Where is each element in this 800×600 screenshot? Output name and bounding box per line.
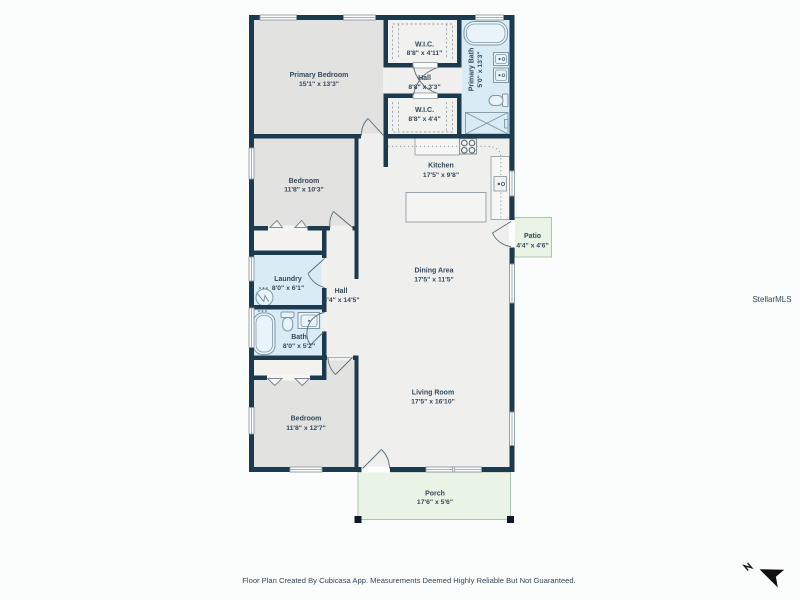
svg-text:Laundry: Laundry [274, 276, 302, 283]
svg-text:Primary Bath: Primary Bath [469, 48, 476, 92]
svg-text:8'8" x 4'4": 8'8" x 4'4" [408, 116, 440, 123]
svg-text:Bath: Bath [291, 334, 307, 341]
svg-text:5'0" x 13'3": 5'0" x 13'3" [477, 51, 484, 87]
svg-text:8'0" x 5'2": 8'0" x 5'2" [283, 343, 315, 350]
svg-text:17'6" x 5'6": 17'6" x 5'6" [417, 499, 453, 506]
svg-text:15'1" x 13'3": 15'1" x 13'3" [299, 81, 339, 88]
svg-text:17'5" x 9'8": 17'5" x 9'8" [423, 172, 459, 179]
svg-text:17'5" x 16'10": 17'5" x 16'10" [411, 399, 455, 406]
svg-text:11'8" x 12'7": 11'8" x 12'7" [286, 425, 326, 432]
svg-text:W.I.C.: W.I.C. [415, 107, 434, 114]
svg-text:Living Room: Living Room [412, 390, 454, 397]
svg-text:Patio: Patio [524, 233, 541, 240]
svg-text:Bedroom: Bedroom [291, 416, 322, 423]
svg-text:Hall: Hall [335, 288, 348, 295]
svg-text:Bedroom: Bedroom [289, 178, 320, 185]
svg-text:Floor Plan Created By Cubicasa: Floor Plan Created By Cubicasa App. Meas… [242, 576, 575, 585]
svg-text:Primary Bedroom: Primary Bedroom [290, 72, 349, 79]
svg-text:8'8" x 3'3": 8'8" x 3'3" [408, 84, 440, 91]
svg-text:Kitchen: Kitchen [428, 163, 454, 170]
svg-text:11'8" x 10'3": 11'8" x 10'3" [284, 187, 324, 194]
svg-text:4'4" x 4'6": 4'4" x 4'6" [516, 242, 548, 249]
svg-text:Dining Area: Dining Area [414, 268, 453, 275]
svg-text:W.I.C.: W.I.C. [415, 42, 434, 49]
svg-text:3'4" x 14'5": 3'4" x 14'5" [323, 297, 359, 304]
svg-text:8'8" x 4'11": 8'8" x 4'11" [407, 50, 443, 57]
svg-text:Hall: Hall [418, 75, 431, 82]
svg-text:StellarMLS: StellarMLS [752, 295, 791, 304]
svg-text:17'5" x 11'5": 17'5" x 11'5" [414, 276, 454, 283]
svg-text:Porch: Porch [425, 491, 445, 498]
svg-text:8'0" x 6'1": 8'0" x 6'1" [272, 285, 304, 292]
